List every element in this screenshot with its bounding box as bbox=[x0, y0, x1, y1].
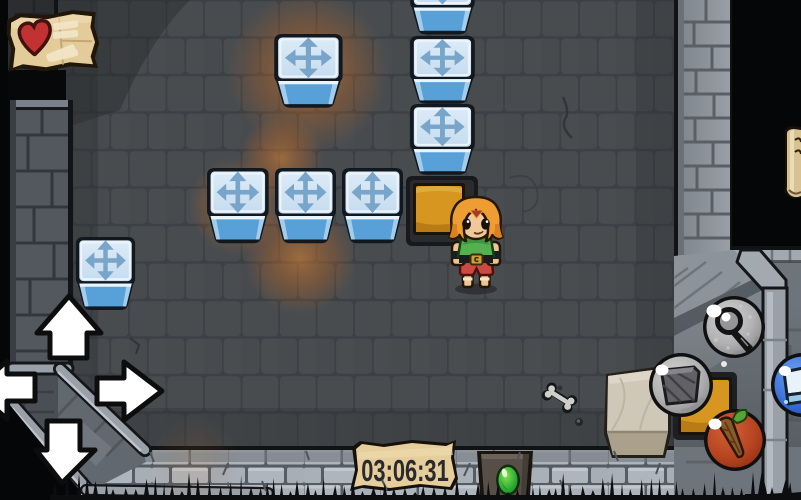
svg-text:03:06:31: 03:06:31 bbox=[361, 453, 449, 488]
